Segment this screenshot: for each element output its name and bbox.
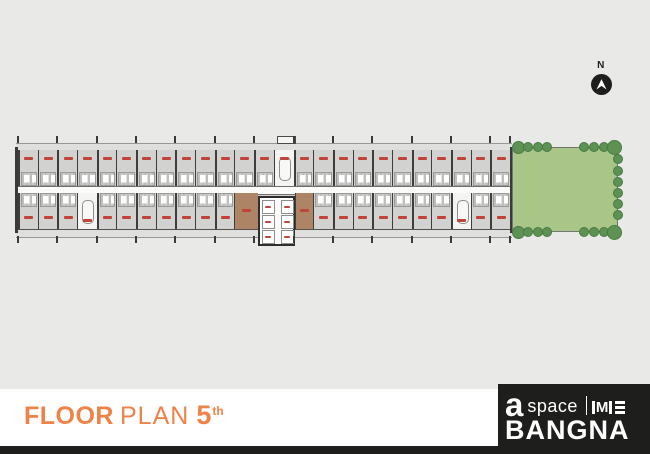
stair-unit — [77, 193, 97, 229]
unit-number-label — [182, 157, 191, 160]
unit-cell — [136, 193, 156, 229]
elevator-label — [284, 236, 290, 239]
core-lobby-right — [295, 193, 313, 229]
unit-number-label — [83, 219, 92, 222]
unit-cell — [392, 193, 412, 229]
unit-cell — [18, 150, 38, 186]
unit-cell — [195, 193, 215, 229]
unit-number-label — [339, 216, 348, 219]
unit-bathroom — [257, 172, 273, 186]
unit-cell — [471, 193, 491, 229]
unit-number-label — [221, 216, 230, 219]
elevator-cell — [262, 230, 275, 244]
unit-cell — [215, 193, 235, 229]
brand-logo: a space M BANGNA — [498, 384, 650, 454]
elevator-label — [265, 206, 271, 209]
me-bar-left — [592, 401, 595, 414]
unit-cell — [490, 193, 510, 229]
unit-number-label — [240, 157, 249, 160]
unit-bathroom — [297, 172, 313, 186]
elevator-cell — [281, 200, 294, 214]
unit-cell — [215, 150, 235, 186]
unit-bathroom — [415, 172, 431, 186]
unit-number-label — [418, 157, 427, 160]
unit-bathroom — [433, 172, 450, 186]
column-tick — [450, 136, 452, 143]
unit-bathroom — [197, 172, 214, 186]
brand-logo-row: a space M — [505, 392, 625, 416]
unit-number-label — [358, 216, 367, 219]
me-monogram-icon: M — [592, 401, 625, 414]
unit-cell — [372, 193, 392, 229]
tree — [589, 227, 599, 237]
unit-number-label — [162, 216, 171, 219]
unit-number-label — [497, 157, 506, 160]
unit-cell — [234, 150, 254, 186]
elevator-label — [265, 221, 271, 224]
stair-unit — [274, 150, 294, 186]
column-tick — [253, 236, 255, 243]
unit-number-label — [319, 157, 328, 160]
unit-bathroom — [375, 193, 391, 207]
unit-number-label — [300, 157, 309, 160]
unit-bathroom — [60, 193, 76, 207]
tree — [613, 166, 623, 176]
tree — [542, 142, 552, 152]
column-tick — [450, 236, 452, 243]
column-tick — [371, 136, 373, 143]
tree — [589, 142, 599, 152]
unit-bathroom — [394, 193, 411, 207]
unit-cell — [412, 150, 432, 186]
unit-bathroom — [60, 172, 76, 186]
unit-cell — [156, 150, 176, 186]
unit-cell — [333, 193, 353, 229]
tree — [533, 142, 543, 152]
unit-bathroom — [454, 172, 470, 186]
unit-cell — [175, 150, 195, 186]
unit-cell — [353, 150, 373, 186]
unit-cell — [116, 193, 136, 229]
unit-number-label — [437, 157, 446, 160]
column-tick — [489, 236, 491, 243]
elevator-cell — [262, 215, 275, 229]
unit-bathroom — [118, 172, 135, 186]
unit-cell — [136, 150, 156, 186]
unit-number-label — [260, 157, 269, 160]
elevator-label — [265, 236, 271, 239]
column-tick — [509, 136, 511, 143]
unit-bathroom — [218, 193, 234, 207]
column-tick — [332, 136, 334, 143]
unit-number-label — [44, 157, 53, 160]
unit-number-label — [122, 157, 131, 160]
column-tick — [96, 236, 98, 243]
unit-bathroom — [315, 172, 332, 186]
unit-bathroom — [355, 172, 372, 186]
unit-number-label — [398, 157, 407, 160]
column-tick — [411, 236, 413, 243]
unit-cell — [97, 193, 117, 229]
unit-number-label — [379, 216, 388, 219]
brand-separator — [586, 396, 588, 415]
column-tick — [135, 136, 137, 143]
unit-bathroom — [375, 172, 391, 186]
unit-cell — [313, 150, 333, 186]
title-floor-number: 5 — [196, 400, 211, 430]
unit-bathroom — [139, 172, 155, 186]
unit-bathroom — [336, 193, 352, 207]
column-tick — [411, 136, 413, 143]
unit-bathroom — [79, 172, 96, 186]
core-lobby-left — [234, 193, 258, 229]
unit-number-label — [476, 216, 485, 219]
unit-bathroom — [218, 172, 234, 186]
unit-number-label — [358, 157, 367, 160]
elevator-cell — [262, 200, 275, 214]
floor-plan-page: N FLOORPLAN5th a space — [0, 0, 650, 454]
unit-bathroom — [315, 193, 332, 207]
title-plan-word: PLAN — [120, 402, 189, 430]
unit-bathroom — [236, 172, 253, 186]
elevator-label — [284, 221, 290, 224]
tree — [607, 225, 622, 240]
unit-bathroom — [394, 172, 411, 186]
unit-bathroom — [473, 193, 490, 207]
unit-number-label — [457, 219, 466, 222]
brand-space: space — [527, 397, 578, 416]
unit-cell — [57, 193, 77, 229]
tree — [579, 227, 589, 237]
unit-cell — [116, 150, 136, 186]
column-tick — [174, 236, 176, 243]
column-tick — [371, 236, 373, 243]
tree — [613, 177, 623, 187]
unit-cell — [353, 193, 373, 229]
unit-cell — [412, 193, 432, 229]
unit-cell — [333, 150, 353, 186]
column-tick — [56, 136, 58, 143]
brand-project-name: BANGNA — [505, 415, 630, 446]
tree — [533, 227, 543, 237]
column-tick — [253, 136, 255, 143]
unit-bathroom — [158, 193, 175, 207]
unit-number-label — [280, 157, 289, 160]
unit-number-label — [162, 157, 171, 160]
unit-cell — [372, 150, 392, 186]
column-tick — [293, 136, 295, 143]
tree — [523, 227, 533, 237]
column-tick — [293, 236, 295, 243]
tree — [523, 142, 533, 152]
unit-bathroom — [21, 172, 37, 186]
stair-unit — [451, 193, 471, 229]
unit-cell — [294, 150, 314, 186]
unit-number-label — [201, 216, 210, 219]
tree — [607, 140, 622, 155]
unit-cell — [175, 193, 195, 229]
elevator-bank — [258, 196, 295, 246]
unit-bathroom — [178, 193, 194, 207]
unit-number-label — [142, 157, 151, 160]
tree — [542, 227, 552, 237]
unit-number-label — [398, 216, 407, 219]
unit-number-label — [476, 157, 485, 160]
unit-cell — [57, 150, 77, 186]
unit-bathroom — [178, 172, 194, 186]
unit-number-label — [24, 216, 33, 219]
column-tick — [96, 136, 98, 143]
me-bar-right — [609, 401, 612, 414]
unit-bathroom — [493, 193, 509, 207]
unit-number-label — [418, 216, 427, 219]
column-tick — [17, 236, 19, 243]
unit-number-label — [437, 216, 446, 219]
unit-number-label — [64, 157, 73, 160]
unit-cell — [254, 150, 274, 186]
unit-bathroom — [433, 193, 450, 207]
unit-bathroom — [100, 172, 116, 186]
unit-bathroom — [197, 193, 214, 207]
unit-number-label — [103, 157, 112, 160]
me-letter: M — [596, 402, 609, 415]
unit-cell — [392, 150, 412, 186]
stair-detail — [279, 157, 291, 181]
unit-cell — [490, 150, 510, 186]
unit-bathroom — [158, 172, 175, 186]
unit-bathroom — [21, 193, 37, 207]
unit-cell — [38, 193, 58, 229]
column-tick — [332, 236, 334, 243]
unit-cell — [431, 193, 451, 229]
brand-a: a — [505, 393, 523, 416]
tree — [579, 142, 589, 152]
unit-cell — [38, 150, 58, 186]
column-tick — [17, 136, 19, 143]
unit-cell — [195, 150, 215, 186]
unit-number-label — [24, 157, 33, 160]
unit-number-label — [457, 157, 466, 160]
tree — [613, 210, 623, 220]
elevator-label — [284, 206, 290, 209]
unit-number-label — [64, 216, 73, 219]
unit-cell — [431, 150, 451, 186]
title-floor-word: FLOOR — [24, 402, 114, 430]
unit-number-label — [319, 216, 328, 219]
title-floor-suffix: th — [212, 404, 223, 418]
unit-cell — [451, 150, 471, 186]
unit-number-label — [142, 216, 151, 219]
column-tick — [214, 136, 216, 143]
unit-number-label — [221, 157, 230, 160]
unit-number-label — [103, 216, 112, 219]
unit-bathroom — [415, 193, 431, 207]
unit-number-label — [379, 157, 388, 160]
column-tick — [214, 236, 216, 243]
unit-bathroom — [40, 193, 57, 207]
column-tick — [174, 136, 176, 143]
unit-cell — [97, 150, 117, 186]
tree — [613, 154, 623, 164]
column-tick — [509, 236, 511, 243]
unit-bathroom — [40, 172, 57, 186]
unit-number-label — [497, 216, 506, 219]
tree — [613, 199, 623, 209]
column-tick — [56, 236, 58, 243]
unit-number-label — [122, 216, 131, 219]
elevator-cell — [281, 215, 294, 229]
garden-lawn — [512, 147, 618, 232]
unit-number-label — [44, 216, 53, 219]
unit-cell — [471, 150, 491, 186]
floor-plan-title: FLOORPLAN5th — [24, 400, 224, 431]
unit-bathroom — [493, 172, 509, 186]
unit-cell — [77, 150, 97, 186]
unit-bathroom — [355, 193, 372, 207]
unit-number-label — [339, 157, 348, 160]
unit-bathroom — [473, 172, 490, 186]
tree — [613, 188, 623, 198]
column-tick — [135, 236, 137, 243]
unit-cell — [156, 193, 176, 229]
unit-number-label — [201, 157, 210, 160]
unit-number-label — [300, 209, 309, 212]
unit-bathroom — [336, 172, 352, 186]
unit-bathroom — [100, 193, 116, 207]
unit-bathroom — [118, 193, 135, 207]
unit-bathroom — [139, 193, 155, 207]
unit-number-label — [242, 209, 251, 212]
unit-number-label — [182, 216, 191, 219]
unit-number-label — [83, 157, 92, 160]
column-tick — [489, 136, 491, 143]
unit-cell — [313, 193, 333, 229]
me-e-bars — [615, 401, 625, 414]
unit-cell — [18, 193, 38, 229]
